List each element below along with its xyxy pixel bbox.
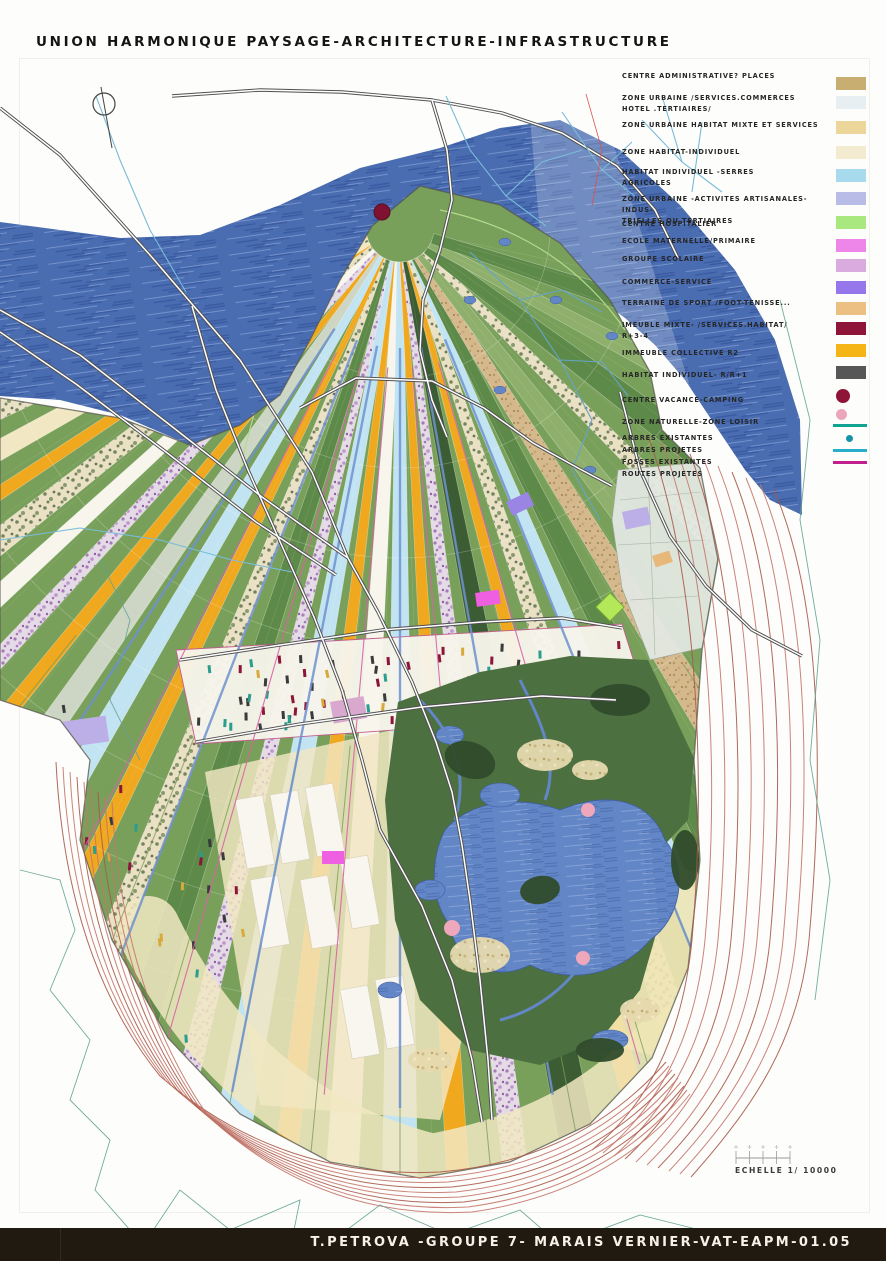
scale-bar — [734, 1145, 792, 1164]
marais-vernier-map — [0, 0, 886, 1261]
scale-label: ECHELLE 1/ 10000 — [735, 1166, 838, 1175]
zone-naturelle-marker — [581, 803, 595, 817]
plan-sheet: UNION HARMONIQUE PAYSAGE-ARCHITECTURE-IN… — [0, 0, 886, 1261]
zone-naturelle-marker — [444, 920, 460, 936]
stream — [692, 122, 702, 192]
ecole-patch — [322, 851, 344, 864]
footer-text: T.PETROVA -GROUPE 7- MARAIS VERNIER-VAT-… — [311, 1235, 852, 1250]
activites-patch — [0, 792, 30, 832]
zone-naturelle-marker — [576, 951, 590, 965]
footer-title-bar: T.PETROVA -GROUPE 7- MARAIS VERNIER-VAT-… — [0, 1228, 886, 1261]
centre-vacance-camping-marker — [374, 204, 390, 220]
